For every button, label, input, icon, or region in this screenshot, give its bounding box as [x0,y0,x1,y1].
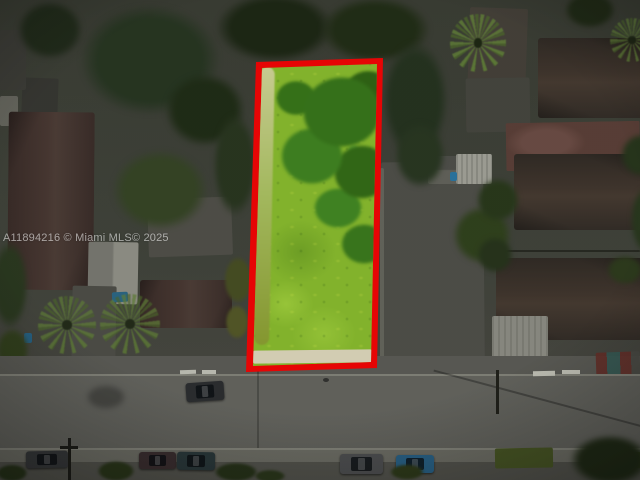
lot-tree-canopy [250,60,384,278]
colored-fence [596,351,640,377]
road-marking [180,370,196,375]
utility-pole [496,370,499,414]
palm-tree [450,14,506,72]
power-line [257,368,259,452]
bush [250,468,290,480]
tree-cluster [385,110,455,200]
aerial-photo: A11894216 © Miami MLS© 2025 [0,0,640,480]
house-roof [21,77,58,114]
car [340,454,383,474]
palm-tree [38,296,96,354]
lot-interior [240,52,390,378]
wall [380,168,384,373]
road-marking [562,370,580,374]
car [139,452,176,469]
road [0,374,640,452]
mls-watermark: A11894216 © Miami MLS© 2025 [3,232,169,244]
road-marking [202,370,216,374]
road-stain [88,386,124,408]
palm-tree [100,294,160,354]
bush [92,458,140,480]
car [185,381,224,403]
tree-cluster [468,170,528,230]
pole-crossarm [60,446,78,449]
car [26,451,68,469]
tree-cluster [470,230,520,280]
bush [385,462,429,480]
utility-pole [68,438,71,480]
road-dot [323,378,329,382]
lot-front-sidewalk [253,349,372,363]
road-marking [533,371,555,376]
grass-strip [495,447,553,468]
lot-boundary-outline [240,52,390,378]
